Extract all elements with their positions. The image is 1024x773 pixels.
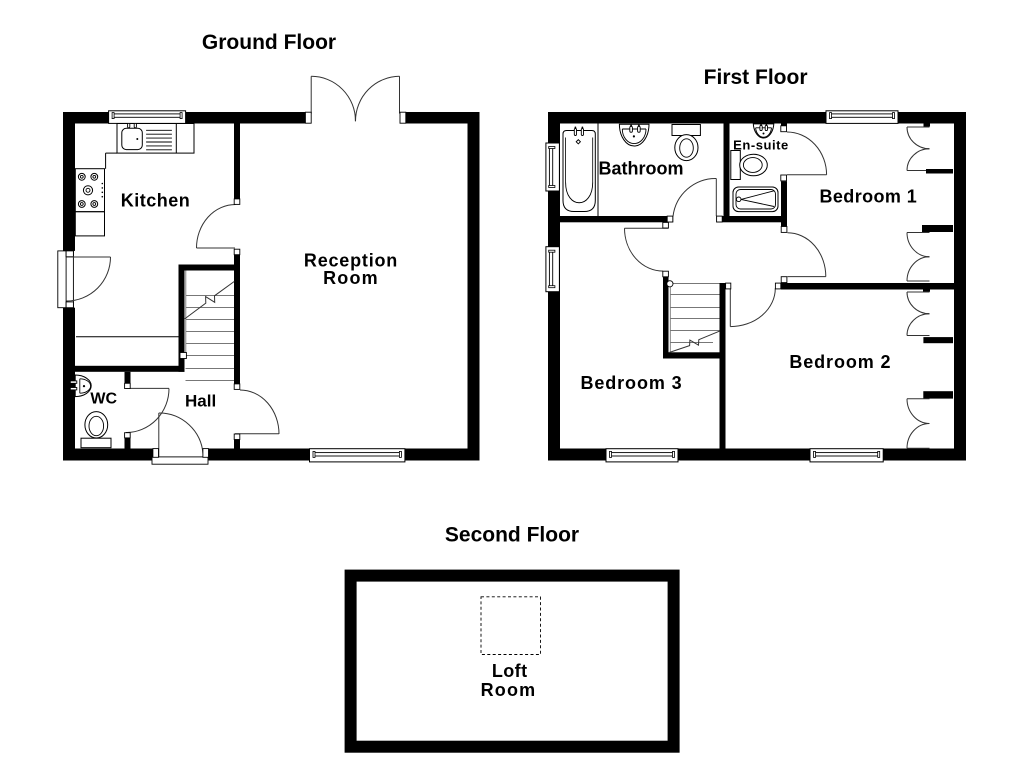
svg-text:En-suite: En-suite (733, 138, 789, 153)
svg-text:WC: WC (90, 391, 117, 408)
svg-text:Room: Room (481, 680, 537, 700)
svg-text:Ground Floor: Ground Floor (202, 31, 336, 54)
svg-text:Room: Room (323, 268, 379, 288)
svg-text:Bedroom 1: Bedroom 1 (819, 187, 917, 207)
svg-text:Bedroom 3: Bedroom 3 (580, 373, 682, 393)
svg-text:First Floor: First Floor (704, 66, 808, 89)
svg-text:Kitchen: Kitchen (121, 191, 191, 211)
svg-text:Second Floor: Second Floor (445, 524, 579, 547)
svg-text:Loft: Loft (492, 661, 528, 681)
svg-text:Bedroom 2: Bedroom 2 (789, 352, 891, 372)
svg-text:Bathroom: Bathroom (599, 158, 684, 178)
svg-text:Hall: Hall (185, 391, 216, 410)
